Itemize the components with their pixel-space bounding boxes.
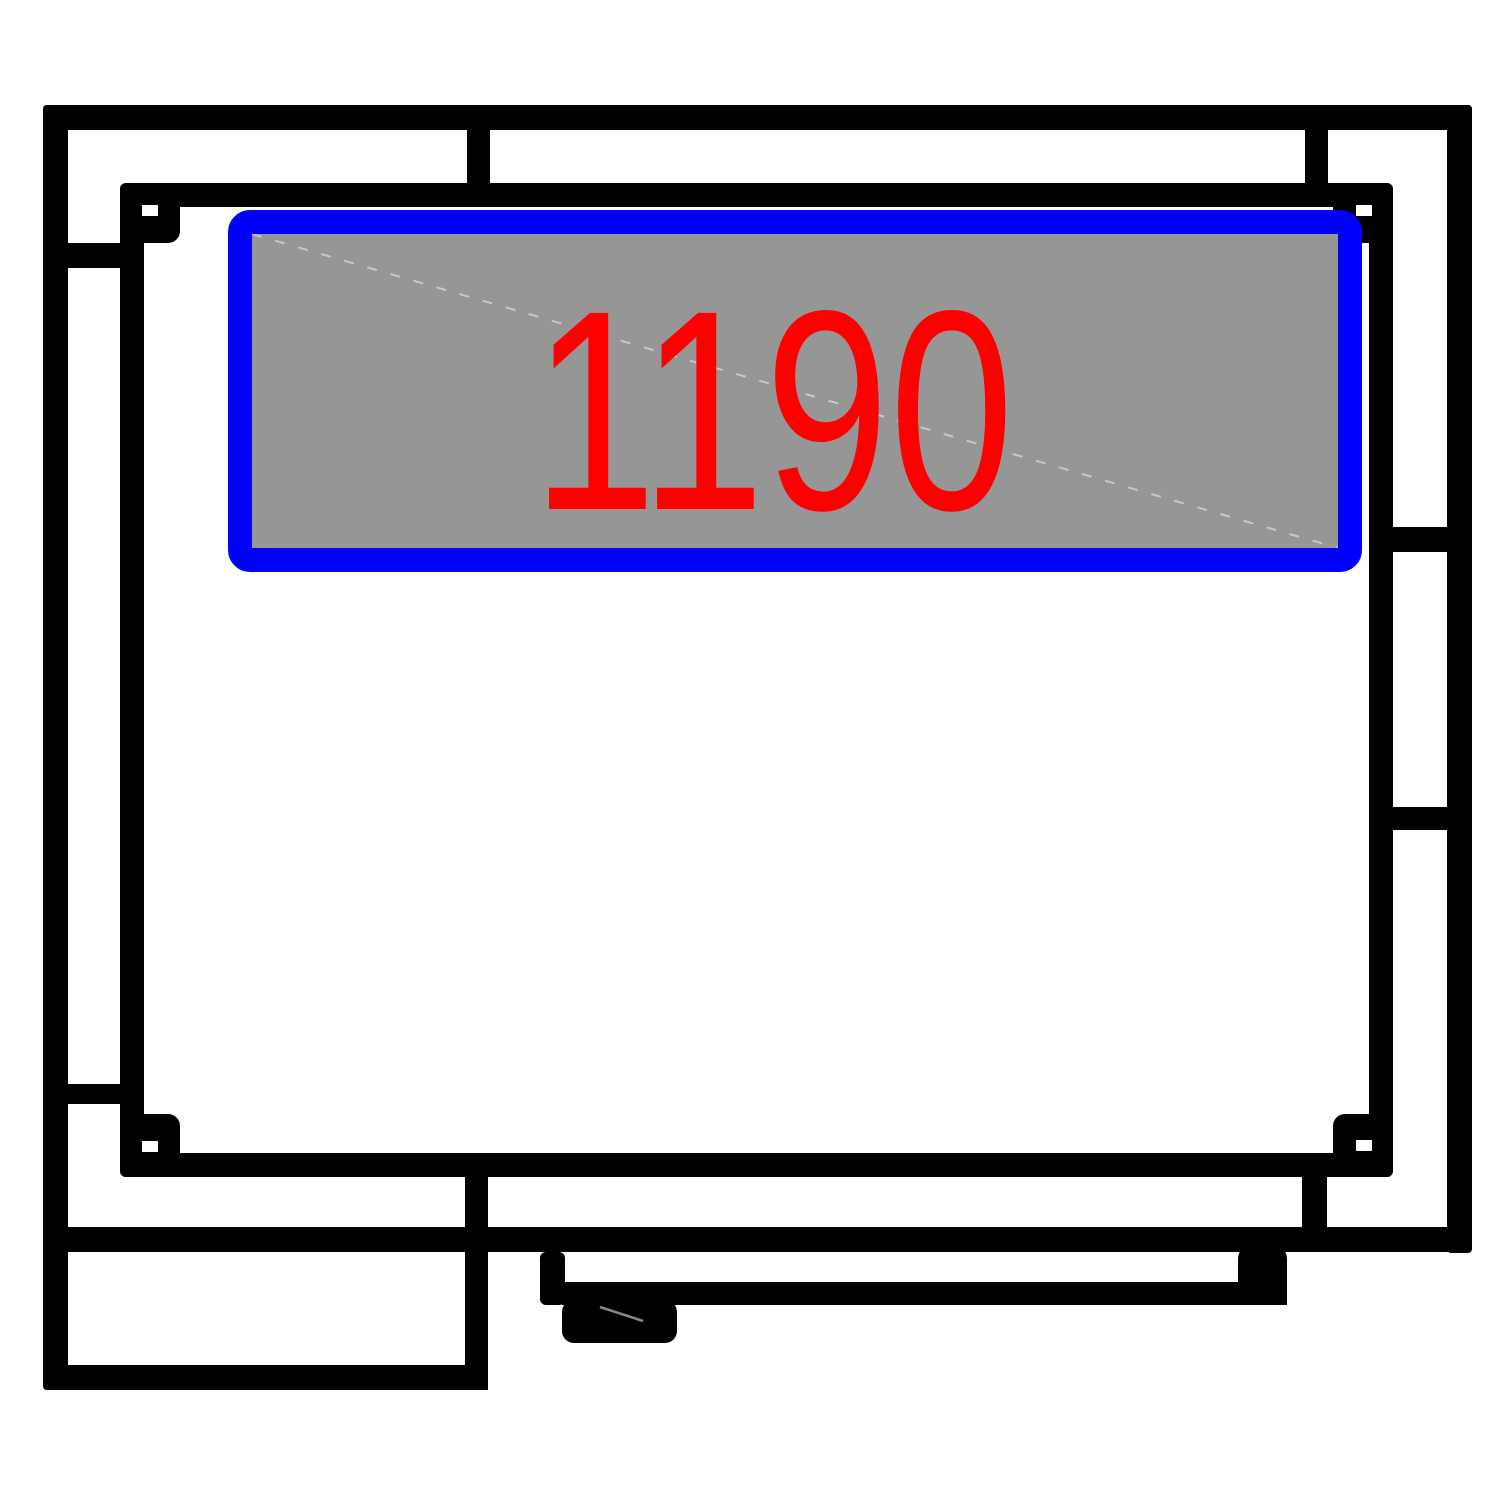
- inner-wall-top: [120, 183, 1393, 207]
- inner-wall-bottom: [120, 1153, 1393, 1177]
- outer-wall-top: [43, 105, 1472, 130]
- fastener-notch-bottom-left: [142, 1141, 158, 1152]
- outer-wall-left: [43, 105, 68, 1390]
- door-handle: [562, 1300, 677, 1343]
- panel-joint-bottom-right: [1302, 1175, 1327, 1230]
- window-dimension-text: 1190: [532, 252, 1014, 570]
- panel-joint-top-left: [467, 128, 490, 186]
- panel-joint-right-lower: [1393, 807, 1447, 830]
- fastener-notch-bottom-right: [1356, 1140, 1372, 1151]
- window-dimension-group: 1190: [532, 252, 1014, 570]
- bottom-box-bottom-wall: [43, 1365, 488, 1390]
- inner-wall-right: [1369, 183, 1393, 1177]
- panel-joint-left-upper: [68, 243, 120, 268]
- bottom-box-right-divider: [465, 1172, 488, 1390]
- floor-plan-canvas: 1190: [0, 0, 1500, 1500]
- door-leaf-right-hook: [1238, 1243, 1287, 1305]
- panel-joint-left-lower: [68, 1084, 120, 1104]
- outer-wall-right: [1447, 105, 1472, 1253]
- inner-wall-left: [120, 183, 144, 1177]
- panel-joint-right-upper: [1393, 527, 1447, 552]
- panel-joint-top-right: [1305, 128, 1328, 186]
- door-frame-step: [540, 1252, 565, 1305]
- fastener-notch-top-left: [142, 205, 158, 216]
- fastener-notch-top-right: [1356, 205, 1372, 216]
- cold-room-plan-drawing: 1190: [0, 0, 1500, 1500]
